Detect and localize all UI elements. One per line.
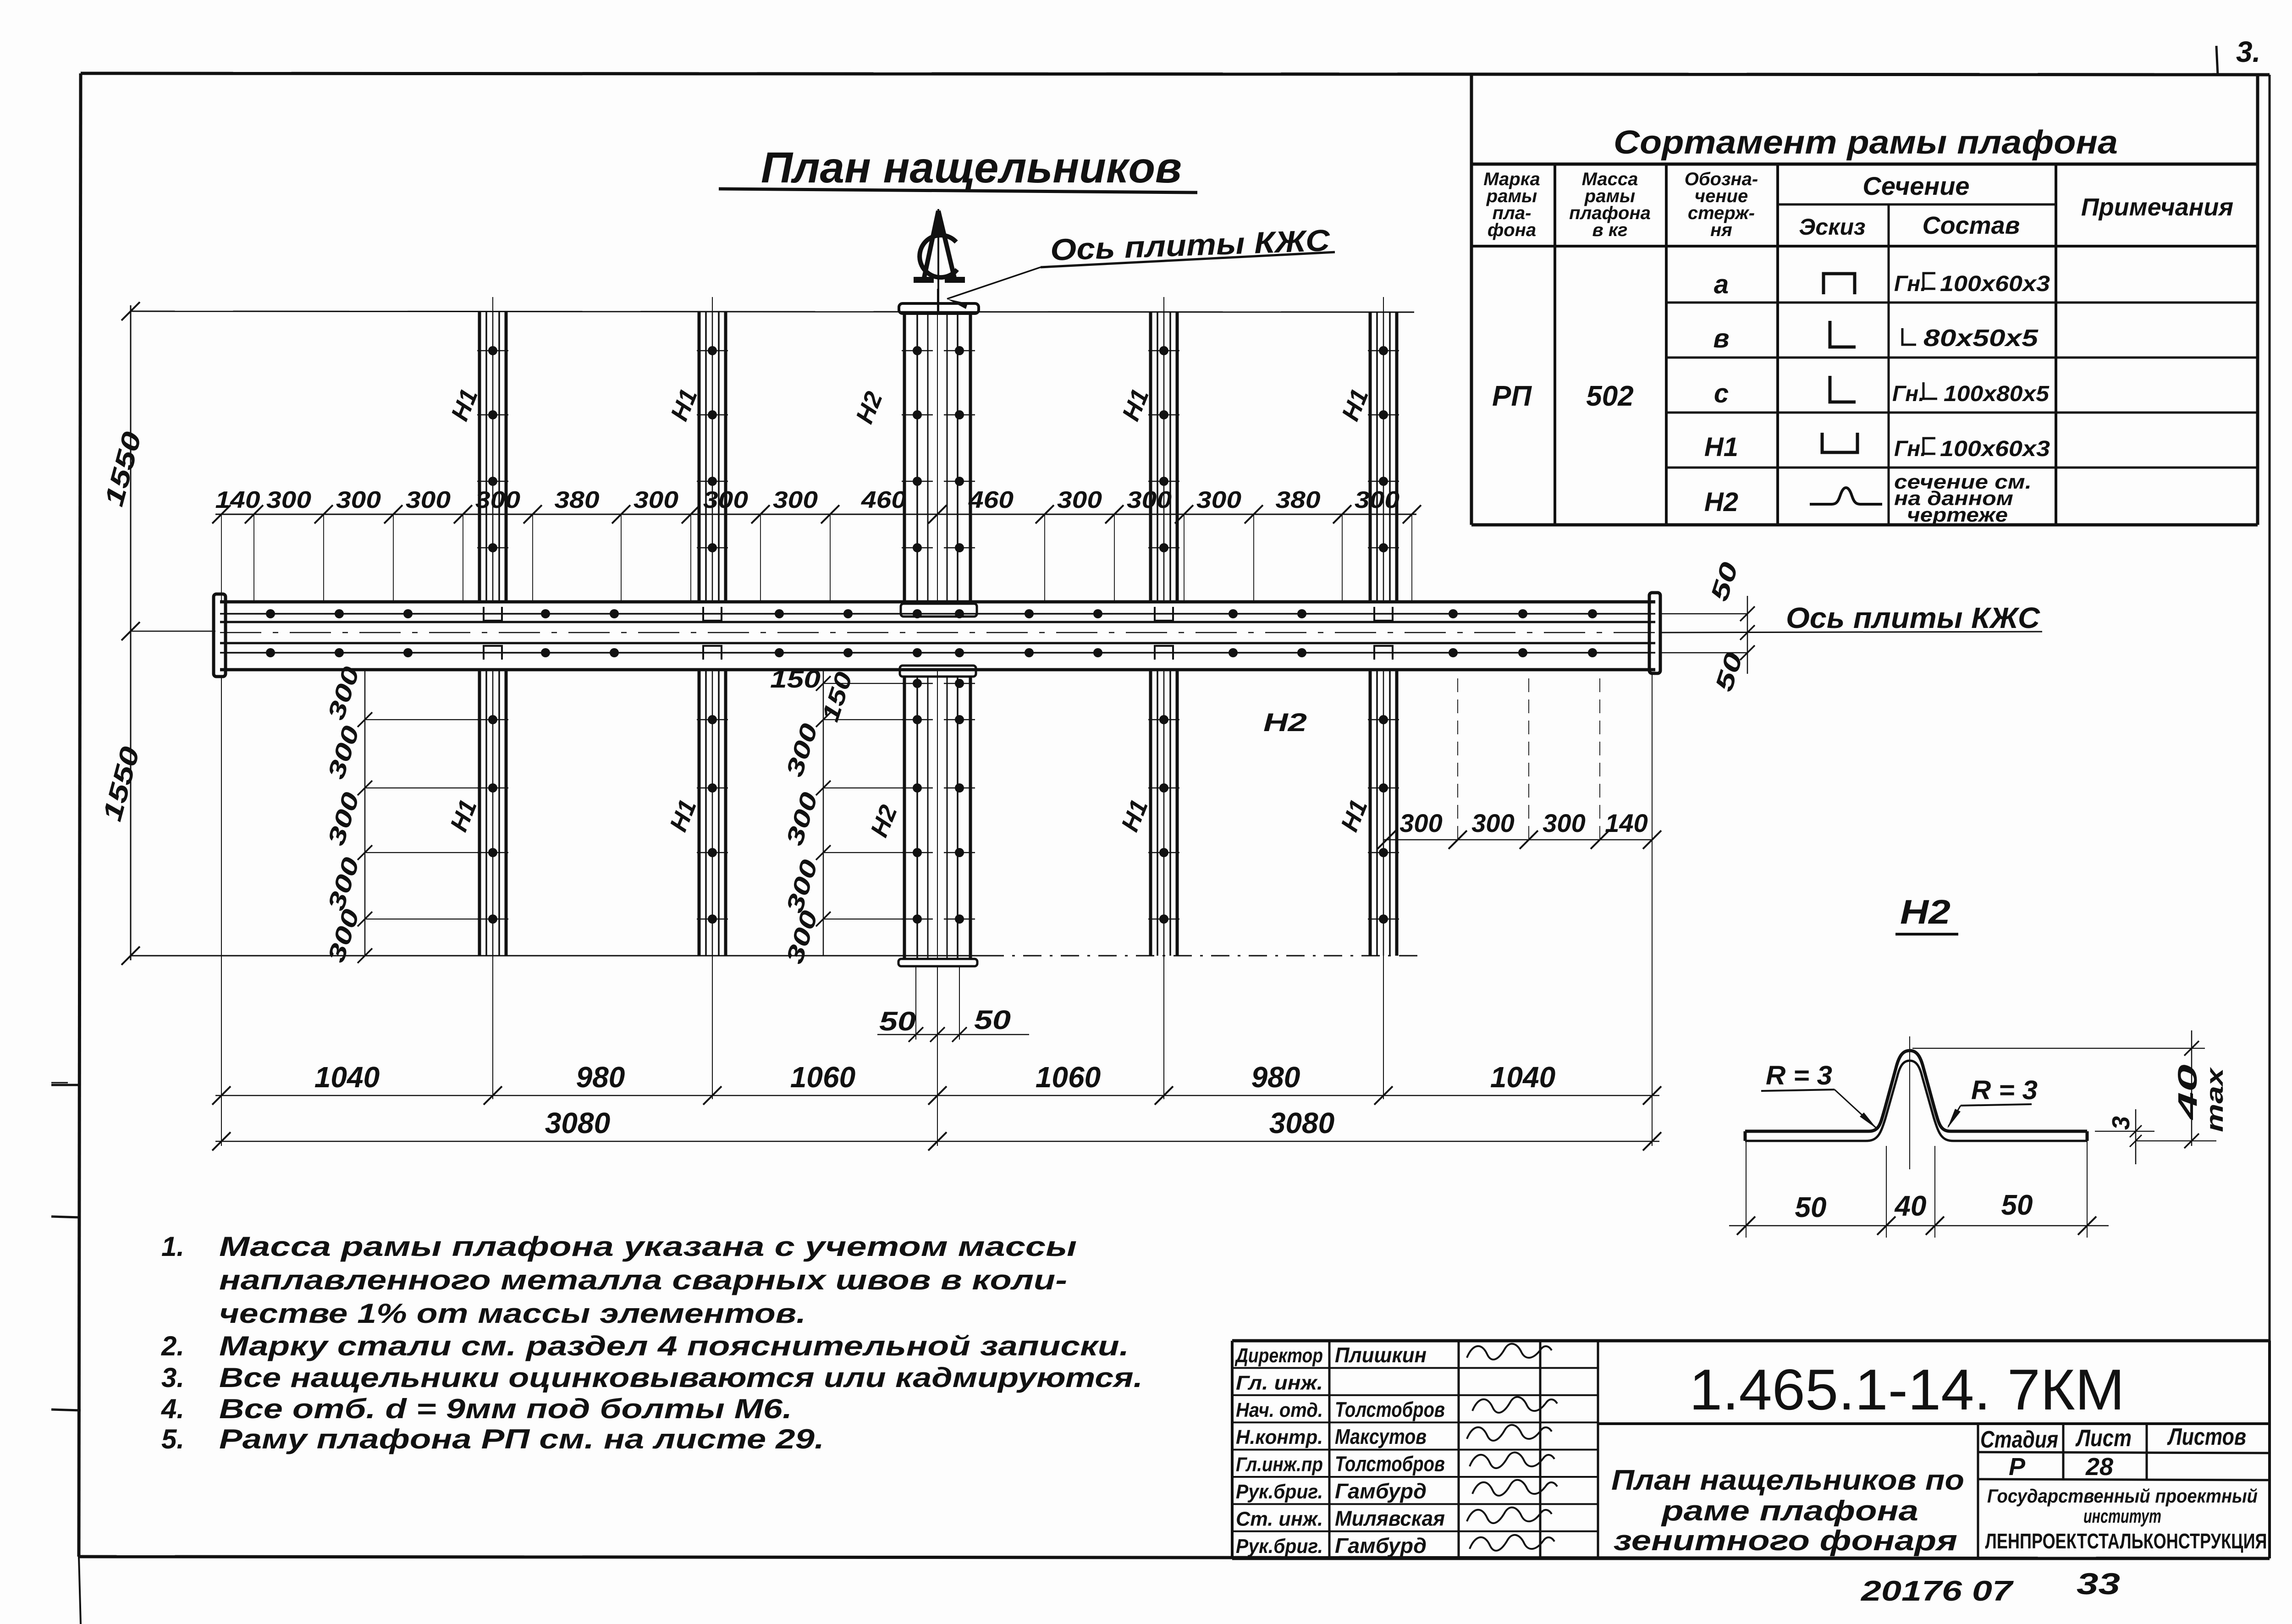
svg-text:100х60х3: 100х60х3 bbox=[1940, 272, 2050, 296]
svg-text:100х80х5: 100х80х5 bbox=[1944, 382, 2050, 406]
svg-text:300: 300 bbox=[1196, 487, 1241, 513]
svg-text:Директор: Директор bbox=[1234, 1344, 1323, 1367]
svg-text:Гамбурд: Гамбурд bbox=[1335, 1479, 1427, 1503]
svg-text:300: 300 bbox=[475, 487, 520, 513]
svg-text:max: max bbox=[2202, 1067, 2228, 1132]
svg-text:Государственный проектный: Государственный проектный bbox=[1987, 1485, 2258, 1507]
svg-text:в кг: в кг bbox=[1592, 220, 1628, 240]
svg-text:50: 50 bbox=[2001, 1189, 2033, 1221]
svg-text:Толстобров: Толстобров bbox=[1335, 1452, 1445, 1476]
svg-text:Гн.: Гн. bbox=[1894, 437, 1927, 461]
svg-text:40: 40 bbox=[2173, 1064, 2203, 1120]
svg-text:План нащельников по: План нащельников по bbox=[1611, 1464, 1964, 1496]
svg-text:Все нащельники оцинковываются: Все нащельники оцинковываются или кадмир… bbox=[219, 1362, 1143, 1393]
svg-text:ЛЕНПРОЕКТСТАЛЬКОНСТРУКЦИЯ: ЛЕНПРОЕКТСТАЛЬКОНСТРУКЦИЯ bbox=[1985, 1529, 2267, 1553]
svg-text:Сечение: Сечение bbox=[1862, 171, 1969, 200]
svg-text:300: 300 bbox=[1127, 487, 1172, 513]
svg-text:фона: фона bbox=[1488, 220, 1536, 240]
svg-text:1060: 1060 bbox=[1036, 1061, 1101, 1094]
svg-text:28: 28 bbox=[2085, 1453, 2113, 1481]
svg-text:раме плафона: раме плафона bbox=[1660, 1495, 1918, 1527]
svg-text:50: 50 bbox=[879, 1007, 916, 1036]
svg-text:Н2: Н2 bbox=[1704, 487, 1738, 517]
svg-text:300: 300 bbox=[406, 487, 451, 513]
svg-text:4.: 4. bbox=[161, 1393, 184, 1424]
svg-text:Стадия: Стадия bbox=[1980, 1426, 2058, 1453]
svg-text:3080: 3080 bbox=[545, 1107, 610, 1140]
svg-text:План нащельников: План нащельников bbox=[761, 143, 1182, 192]
svg-text:2.: 2. bbox=[161, 1331, 184, 1361]
svg-text:300: 300 bbox=[1355, 487, 1399, 513]
svg-text:3: 3 bbox=[2107, 1116, 2135, 1130]
svg-text:1040: 1040 bbox=[1490, 1061, 1555, 1094]
svg-text:Плишкин: Плишкин bbox=[1335, 1343, 1427, 1367]
svg-text:институт: институт bbox=[2083, 1505, 2161, 1527]
svg-text:а: а bbox=[1714, 270, 1729, 299]
svg-text:40: 40 bbox=[1894, 1190, 1927, 1222]
svg-text:Ст. инж.: Ст. инж. bbox=[1236, 1508, 1323, 1530]
svg-text:140: 140 bbox=[1605, 809, 1647, 837]
svg-text:300: 300 bbox=[773, 487, 818, 513]
svg-text:300: 300 bbox=[703, 487, 748, 513]
svg-text:в: в bbox=[1713, 324, 1729, 353]
svg-text:Листов: Листов bbox=[2167, 1424, 2246, 1450]
svg-text:наплавленного металла сварных: наплавленного металла сварных швов в кол… bbox=[219, 1265, 1067, 1295]
svg-text:140: 140 bbox=[215, 487, 260, 513]
svg-text:460: 460 bbox=[968, 487, 1014, 513]
svg-text:980: 980 bbox=[576, 1061, 625, 1094]
svg-text:Рук.бриг.: Рук.бриг. bbox=[1236, 1535, 1323, 1558]
svg-text:Милявская: Милявская bbox=[1335, 1506, 1445, 1530]
svg-text:зенитного фонаря: зенитного фонаря bbox=[1614, 1525, 1957, 1557]
svg-text:20176 07: 20176 07 bbox=[1861, 1575, 2014, 1607]
svg-text:Раму плафона РП см. на листе 2: Раму плафона РП см. на листе 29. bbox=[219, 1424, 824, 1454]
svg-text:Р: Р bbox=[2009, 1453, 2026, 1481]
svg-text:Эскиз: Эскиз bbox=[1799, 214, 1865, 240]
svg-text:5.: 5. bbox=[161, 1424, 184, 1454]
svg-text:Гл.инж.пр: Гл.инж.пр bbox=[1236, 1453, 1323, 1476]
svg-text:Лист: Лист bbox=[2075, 1425, 2132, 1452]
svg-text:Масса рамы плафона указана с у: Масса рамы плафона указана с учетом масс… bbox=[219, 1231, 1077, 1262]
svg-text:Н.контр.: Н.контр. bbox=[1236, 1426, 1323, 1448]
svg-text:R = 3: R = 3 bbox=[1766, 1061, 1832, 1090]
svg-text:Толстобров: Толстобров bbox=[1335, 1398, 1445, 1421]
svg-text:Рук.бриг.: Рук.бриг. bbox=[1236, 1481, 1323, 1503]
svg-text:с: с bbox=[1714, 379, 1729, 408]
svg-text:100х60х3: 100х60х3 bbox=[1940, 437, 2050, 461]
svg-text:Гамбурд: Гамбурд bbox=[1335, 1534, 1427, 1558]
svg-text:Н2: Н2 bbox=[1900, 893, 1950, 931]
svg-text:Состав: Состав bbox=[1923, 212, 2020, 239]
svg-text:Гн.: Гн. bbox=[1892, 382, 1925, 406]
svg-text:Гл. инж.: Гл. инж. bbox=[1236, 1371, 1323, 1394]
svg-text:Нач. отд.: Нач. отд. bbox=[1236, 1399, 1323, 1421]
svg-text:300: 300 bbox=[1471, 809, 1514, 837]
svg-text:300: 300 bbox=[336, 487, 381, 513]
svg-text:Максутов: Максутов bbox=[1335, 1425, 1427, 1448]
svg-text:300: 300 bbox=[634, 487, 678, 513]
svg-text:1.: 1. bbox=[161, 1231, 184, 1262]
svg-text:Сортамент рамы плафона: Сортамент рамы плафона bbox=[1614, 124, 2118, 161]
svg-text:150: 150 bbox=[770, 666, 821, 693]
svg-text:300: 300 bbox=[266, 487, 311, 513]
svg-text:502: 502 bbox=[1586, 380, 1633, 412]
svg-text:300: 300 bbox=[1057, 487, 1102, 513]
svg-text:3080: 3080 bbox=[1269, 1107, 1334, 1140]
svg-text:Все отб. d = 9мм под болты М6: Все отб. d = 9мм под болты М6. bbox=[219, 1393, 792, 1424]
svg-text:300: 300 bbox=[1543, 809, 1585, 837]
svg-text:РП: РП bbox=[1492, 380, 1532, 412]
svg-text:1060: 1060 bbox=[790, 1061, 855, 1094]
svg-text:чертеже: чертеже bbox=[1907, 504, 2008, 526]
svg-text:1040: 1040 bbox=[314, 1061, 380, 1094]
svg-text:300: 300 bbox=[1399, 809, 1442, 837]
svg-text:Марку стали см. раздел 4 поясн: Марку стали см. раздел 4 пояснительной з… bbox=[219, 1331, 1129, 1361]
svg-text:980: 980 bbox=[1251, 1061, 1300, 1094]
svg-text:честве 1% от массы элементов.: честве 1% от массы элементов. bbox=[219, 1298, 806, 1329]
svg-text:R = 3: R = 3 bbox=[1971, 1075, 2038, 1105]
svg-text:80х50х5: 80х50х5 bbox=[1923, 325, 2039, 352]
svg-text:380: 380 bbox=[1276, 487, 1321, 513]
svg-text:Ось плиты КЖС: Ось плиты КЖС bbox=[1786, 601, 2040, 634]
svg-text:3.: 3. bbox=[2236, 35, 2260, 68]
svg-text:1.465.1-14. 7КМ: 1.465.1-14. 7КМ bbox=[1689, 1357, 2125, 1422]
svg-text:460: 460 bbox=[861, 487, 906, 513]
svg-text:Примечания: Примечания bbox=[2081, 193, 2233, 221]
svg-text:380: 380 bbox=[555, 487, 600, 513]
svg-text:3.: 3. bbox=[161, 1362, 184, 1393]
svg-text:ня: ня bbox=[1710, 220, 1732, 240]
svg-text:50: 50 bbox=[974, 1005, 1011, 1035]
svg-text:Н2: Н2 bbox=[1263, 708, 1307, 737]
svg-text:50: 50 bbox=[1795, 1192, 1827, 1223]
svg-text:Гн.: Гн. bbox=[1894, 272, 1927, 296]
svg-text:Н1: Н1 bbox=[1704, 432, 1738, 462]
svg-text:33: 33 bbox=[2077, 1567, 2120, 1601]
